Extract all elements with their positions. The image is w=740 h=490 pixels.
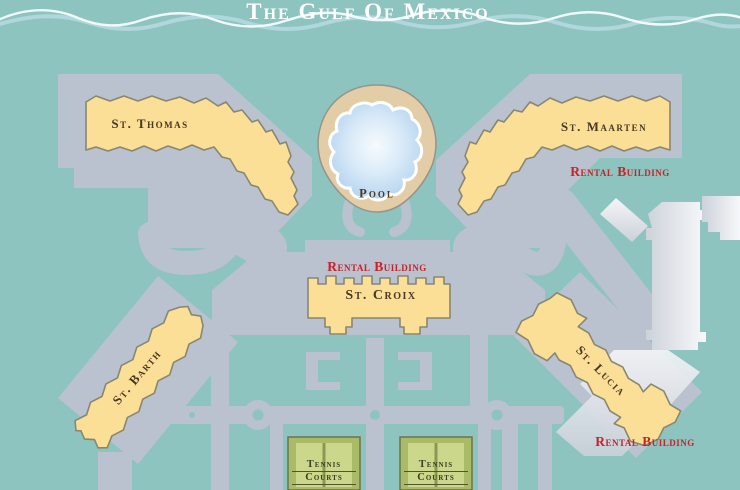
- tennis-courts-label-2: Tennis Courts: [404, 459, 468, 485]
- tennis-label-line2: Courts: [404, 472, 468, 485]
- site-map-graphic: [0, 0, 740, 490]
- tennis-label-line2: Courts: [292, 472, 356, 485]
- tennis-label-line1: Tennis: [292, 459, 356, 472]
- resort-site-map: The Gulf Of Mexico St. Thomas St. Maarte…: [0, 0, 740, 490]
- white-building-slab: [646, 202, 706, 350]
- tennis-label-line1: Tennis: [404, 459, 468, 472]
- tennis-courts-label-1: Tennis Courts: [292, 459, 356, 485]
